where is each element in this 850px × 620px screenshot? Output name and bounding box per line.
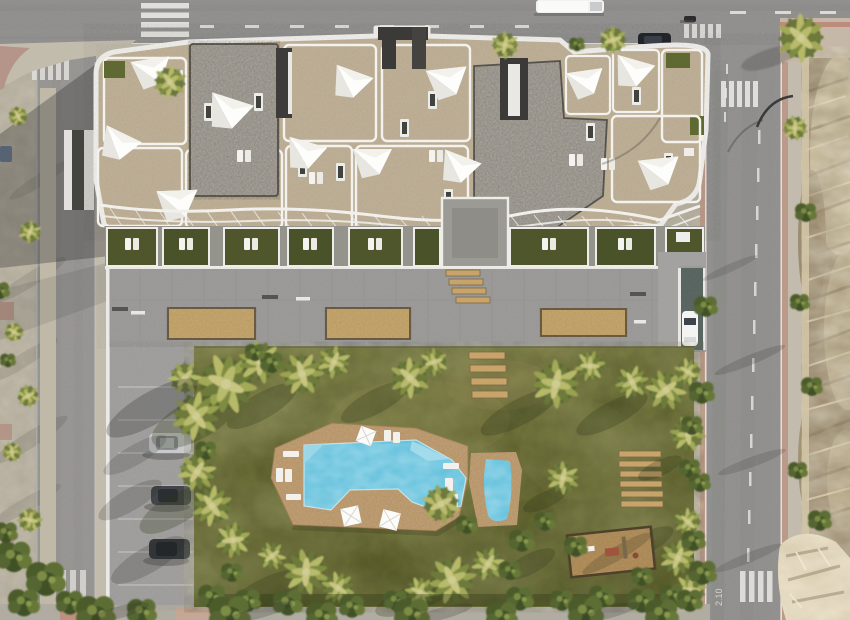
svg-text:2.10: 2.10 (714, 588, 724, 606)
